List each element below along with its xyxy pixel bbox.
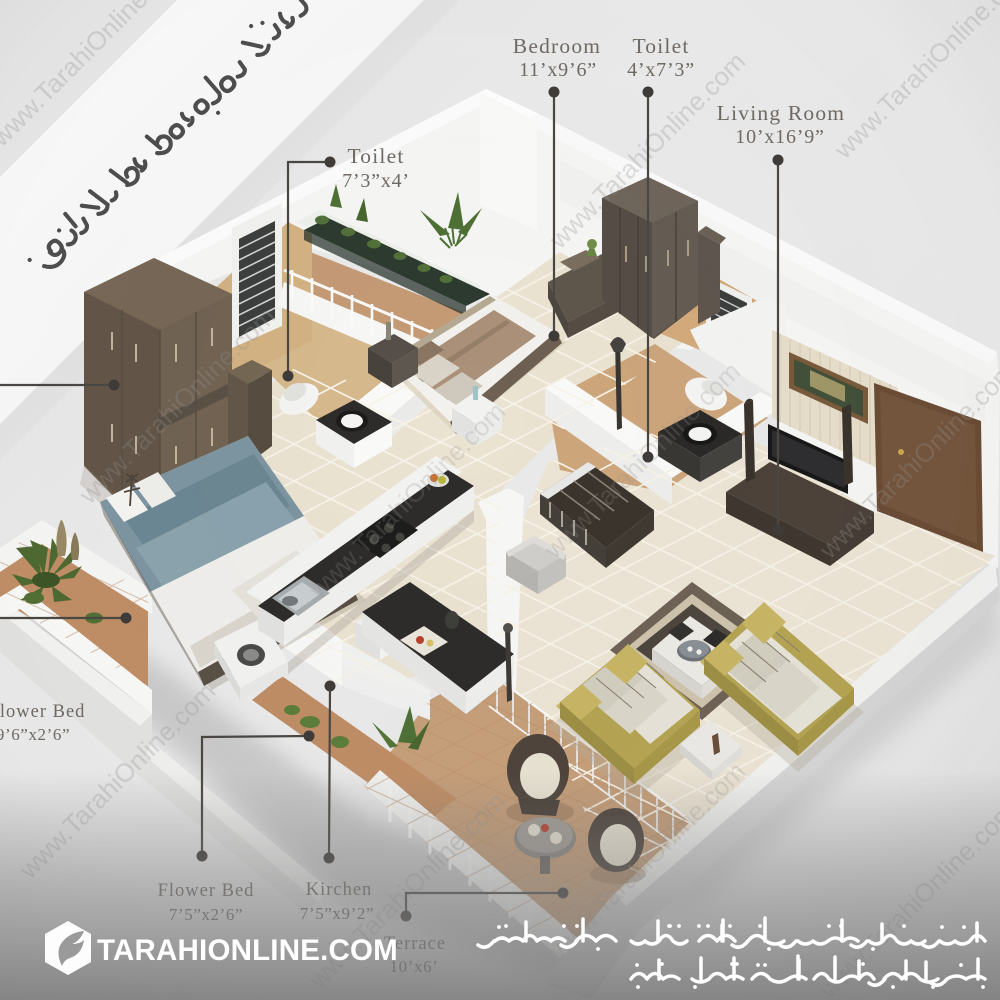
svg-text:TARAHIONLINE.COM: TARAHIONLINE.COM xyxy=(97,934,398,967)
svg-text:Toilet: Toilet xyxy=(632,34,689,58)
svg-text:4’x7’3”: 4’x7’3” xyxy=(627,59,695,81)
svg-text:Toilet: Toilet xyxy=(347,144,404,168)
svg-text:Bedroom: Bedroom xyxy=(513,34,601,58)
svg-text:7’3”x4’: 7’3”x4’ xyxy=(342,170,410,192)
svg-text:9’6”x2’6”: 9’6”x2’6” xyxy=(0,725,70,744)
svg-text:10’x16’9”: 10’x16’9” xyxy=(735,126,824,148)
svg-text:11’x9’6”: 11’x9’6” xyxy=(519,59,597,81)
svg-text:Living Room: Living Room xyxy=(717,101,845,125)
svg-text:Flower Bed: Flower Bed xyxy=(0,702,85,722)
